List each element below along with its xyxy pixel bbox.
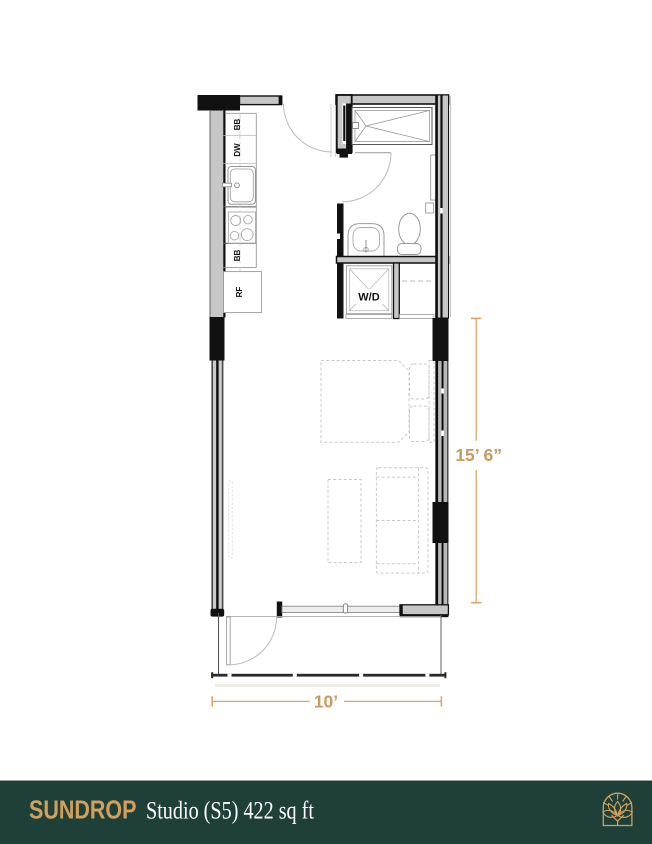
svg-text:10’: 10’: [314, 692, 338, 712]
svg-text:RF: RF: [235, 287, 244, 298]
svg-text:SUNDROP: SUNDROP: [29, 797, 137, 825]
svg-text:15’ 6”: 15’ 6”: [455, 445, 502, 465]
svg-text:Studio (S5) 422 sq ft: Studio (S5) 422 sq ft: [146, 798, 314, 825]
svg-text:BB: BB: [233, 119, 242, 131]
svg-text:DW: DW: [233, 143, 242, 157]
svg-text:BB: BB: [233, 250, 242, 262]
svg-text:W/D: W/D: [358, 292, 379, 304]
